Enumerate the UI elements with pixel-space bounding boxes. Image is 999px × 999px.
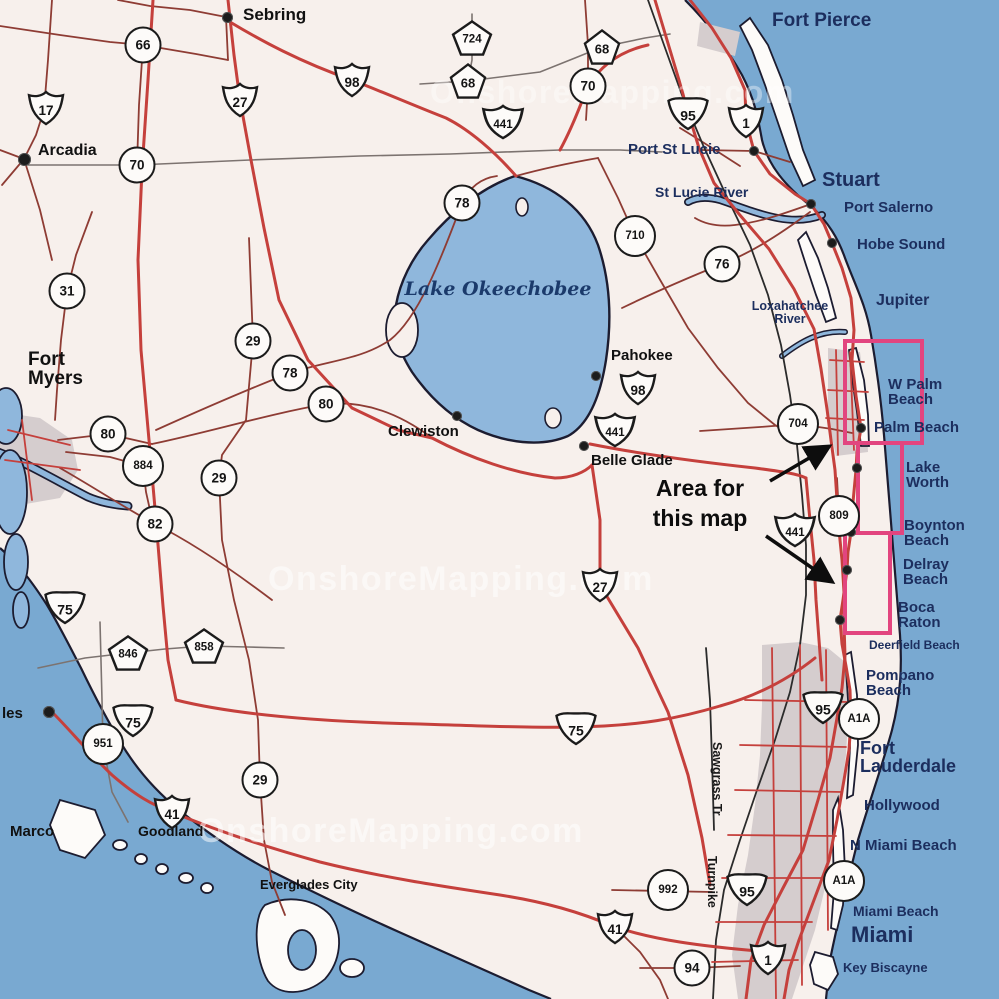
city-label-pahokee: Pahokee <box>611 348 673 363</box>
city-label-clewiston: Clewiston <box>388 424 459 439</box>
city-dot-sebring <box>222 12 233 23</box>
route-shield-us-41: 41 <box>152 794 192 830</box>
lake-okeechobee-label: Lake Okeechobee <box>398 278 598 300</box>
city-label-arcadia: Arcadia <box>38 143 97 159</box>
route-shield-c-70: 70 <box>570 68 607 105</box>
city-label-fort-lauderdale: Fort Lauderdale <box>860 739 956 776</box>
city-dot-lake-worth <box>852 463 862 473</box>
route-shield-c-884: 884 <box>122 445 164 487</box>
city-label-les: les <box>2 706 23 721</box>
city-dot-hobe-sound <box>827 238 837 248</box>
route-shield-c-80: 80 <box>90 416 127 453</box>
route-shield-c-710: 710 <box>614 215 656 257</box>
route-shield-us-27: 27 <box>580 567 620 603</box>
city-dot-boca-raton <box>835 615 845 625</box>
route-shield-c-70: 70 <box>119 147 156 184</box>
city-label-deerfield-beach: Deerfield Beach <box>869 639 960 651</box>
city-label-delray-beach: Delray Beach <box>903 557 949 588</box>
route-shield-c-82: 82 <box>137 506 174 543</box>
route-shield-us-98: 98 <box>332 62 372 98</box>
route-shield-us-441: 441 <box>592 412 638 448</box>
city-dot-arcadia <box>18 153 31 166</box>
city-label-fort-pierce: Fort Pierce <box>772 11 871 30</box>
city-label-belle-glade: Belle Glade <box>591 453 673 468</box>
city-label-port-st-lucie: Port St Lucie <box>628 142 721 157</box>
route-shield-c-78: 78 <box>444 185 481 222</box>
route-shield-c-951: 951 <box>82 723 124 765</box>
city-label-everglades-city: Everglades City <box>260 878 358 891</box>
city-label-hobe-sound: Hobe Sound <box>857 237 945 252</box>
route-shield-us-441: 441 <box>480 104 526 140</box>
route-shield-i-75: 75 <box>554 709 598 746</box>
watermark-bottom: OnshoreMapping.com <box>198 812 584 851</box>
route-shield-i-95: 95 <box>666 94 710 131</box>
route-shield-us-1: 1 <box>748 940 788 976</box>
route-shield-c-94: 94 <box>674 950 711 987</box>
road-label-turnpike: Turnpike <box>705 856 719 908</box>
route-shield-c-29: 29 <box>201 460 238 497</box>
route-shield-us-41: 41 <box>595 909 635 945</box>
route-shield-us-1: 1 <box>726 103 766 139</box>
route-shield-p-724: 724 <box>451 20 493 57</box>
city-label-marco: Marco <box>10 824 54 839</box>
city-dot-port-st-lucie <box>749 146 759 156</box>
route-shield-c-29: 29 <box>242 762 279 799</box>
city-label-w-palm-beach: W Palm Beach <box>888 377 942 408</box>
city-label-boynton-beach: Boynton Beach <box>904 518 965 549</box>
city-dot-pahokee <box>591 371 601 381</box>
city-label-fort-myers: Fort Myers <box>28 350 83 389</box>
route-shield-c-66: 66 <box>125 27 162 64</box>
road-label-sawgrass-tr: Sawgrass Tr <box>710 742 724 816</box>
route-shield-us-17: 17 <box>26 90 66 126</box>
city-label-jupiter: Jupiter <box>876 293 929 309</box>
city-dot-delray-beach <box>842 565 852 575</box>
city-label-lake-worth: Lake Worth <box>906 460 949 491</box>
route-shield-p-846: 846 <box>107 635 149 672</box>
city-label-n-miami-beach: N Miami Beach <box>850 838 957 853</box>
route-shield-p-68: 68 <box>583 29 621 66</box>
route-shield-i-75: 75 <box>43 588 87 625</box>
city-label-sebring: Sebring <box>243 6 306 23</box>
florida-road-map: OnshoreMapping.com OnshoreMapping.com On… <box>0 0 999 999</box>
route-shield-c-31: 31 <box>49 273 86 310</box>
route-shield-c-809: 809 <box>818 495 860 537</box>
city-label-pompano-beach: Pompano Beach <box>866 668 934 699</box>
route-shield-us-27: 27 <box>220 82 260 118</box>
route-shield-c-992: 992 <box>647 869 689 911</box>
city-label-stuart: Stuart <box>822 170 880 190</box>
route-shield-c-a1a: A1A <box>838 698 880 740</box>
route-shield-c-a1a: A1A <box>823 860 865 902</box>
city-dot-belle-glade <box>579 441 589 451</box>
route-shield-c-78: 78 <box>272 355 309 392</box>
route-shield-us-441: 441 <box>772 512 818 548</box>
city-label-port-salerno: Port Salerno <box>844 200 933 215</box>
route-shield-i-95: 95 <box>725 870 769 907</box>
city-label-miami: Miami <box>851 924 913 946</box>
city-dot-palm-beach <box>856 423 866 433</box>
route-shield-c-29: 29 <box>235 323 272 360</box>
city-label-miami-beach: Miami Beach <box>853 904 939 918</box>
city-dot-les <box>43 706 55 718</box>
city-label-hollywood: Hollywood <box>864 798 940 813</box>
route-shield-c-80: 80 <box>308 386 345 423</box>
city-label-key-biscayne: Key Biscayne <box>843 961 928 974</box>
city-label-st-lucie-river: St Lucie River <box>655 185 748 199</box>
city-label-loxahatchee-river: Loxahatchee River <box>734 300 846 326</box>
route-shield-c-704: 704 <box>777 403 819 445</box>
city-dot-stuart <box>806 199 816 209</box>
route-shield-us-98: 98 <box>618 370 658 406</box>
city-label-palm-beach: Palm Beach <box>874 420 959 435</box>
route-shield-p-68: 68 <box>449 63 487 100</box>
route-shield-p-858: 858 <box>183 628 225 665</box>
map-labels-layer: OnshoreMapping.com OnshoreMapping.com On… <box>0 0 999 999</box>
route-shield-c-76: 76 <box>704 246 741 283</box>
city-dot-clewiston <box>452 411 462 421</box>
area-annotation: Area forthis map <box>600 474 800 534</box>
city-label-boca-raton: Boca Raton <box>898 600 941 631</box>
